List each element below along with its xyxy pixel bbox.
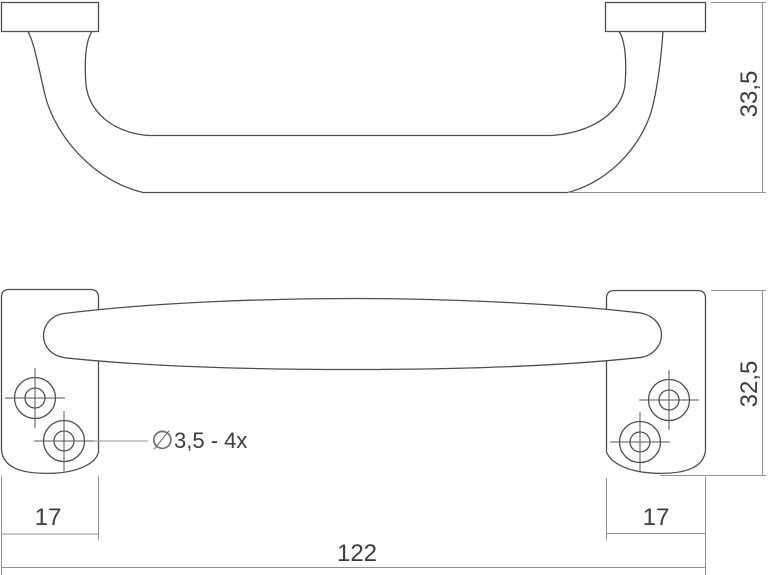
hole-callout-label: 3,5 - 4x [174, 428, 247, 453]
dimension-left-plate-width: 17 [2, 476, 99, 575]
total-width-label: 122 [337, 540, 377, 567]
side-view-right-neck-outer-edge [568, 32, 663, 193]
side-view [2, 3, 706, 193]
right-plate-width-label: 17 [643, 504, 670, 531]
diameter-symbol-icon: ∅ [151, 425, 174, 455]
front-view-grip [44, 299, 662, 370]
dimension-total-width: 122 [2, 540, 706, 568]
side-view-right-foot [606, 3, 706, 32]
pull-handle-drawing: 33,5 ∅ 3,5 - 4x [0, 0, 768, 575]
left-plate-width-label: 17 [35, 504, 62, 531]
front-view [2, 290, 706, 474]
front-height-label: 32,5 [736, 361, 763, 408]
side-view-left-foot [2, 3, 99, 32]
dimension-right-plate-width: 17 [607, 477, 706, 575]
side-view-right-neck-inner-edge [552, 32, 626, 136]
hole-diameter-callout: ∅ 3,5 - 4x [94, 425, 247, 455]
technical-drawing-canvas: 33,5 ∅ 3,5 - 4x [0, 0, 768, 575]
side-height-label: 33,5 [736, 71, 763, 118]
side-view-left-neck-inner-edge [85, 32, 148, 136]
